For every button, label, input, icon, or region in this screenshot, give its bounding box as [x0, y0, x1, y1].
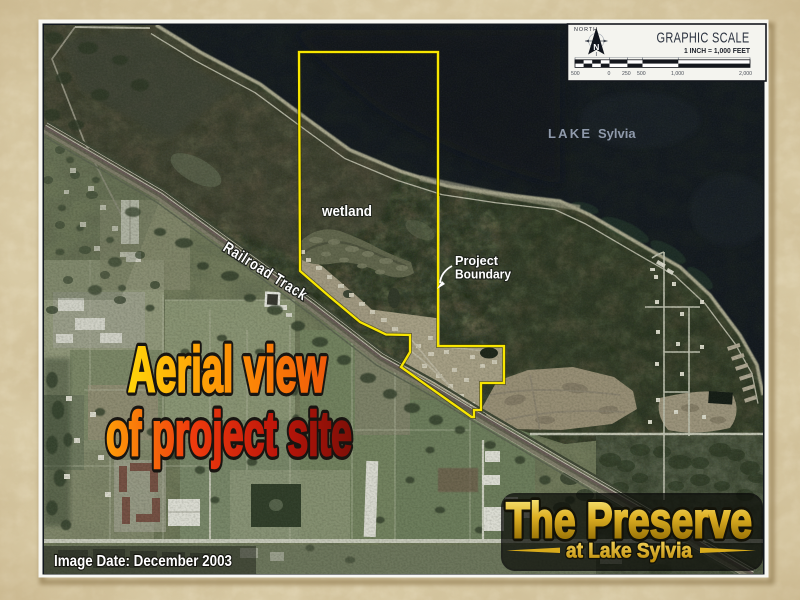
- svg-text:Image Date: December 2003: Image Date: December 2003: [54, 553, 232, 570]
- svg-text:NORTH: NORTH: [574, 27, 598, 33]
- svg-text:Boundary: Boundary: [455, 267, 512, 282]
- svg-text:GRAPHIC SCALE: GRAPHIC SCALE: [657, 30, 750, 47]
- svg-text:2,000: 2,000: [739, 71, 752, 77]
- svg-text:Sylvia: Sylvia: [598, 126, 636, 141]
- svg-text:500: 500: [571, 71, 580, 77]
- svg-text:1 INCH = 1,000 FEET: 1 INCH = 1,000 FEET: [684, 46, 750, 55]
- svg-text:500: 500: [637, 71, 646, 77]
- svg-text:250: 250: [622, 71, 631, 77]
- svg-text:Aerial view: Aerial view: [128, 334, 326, 406]
- svg-text:N: N: [593, 42, 599, 52]
- svg-text:0: 0: [608, 71, 611, 77]
- svg-text:LAKE: LAKE: [548, 126, 592, 141]
- svg-text:1,000: 1,000: [671, 71, 684, 77]
- svg-text:wetland: wetland: [321, 204, 372, 220]
- svg-text:of project site: of project site: [106, 400, 352, 469]
- svg-text:at Lake Sylvia: at Lake Sylvia: [566, 540, 692, 563]
